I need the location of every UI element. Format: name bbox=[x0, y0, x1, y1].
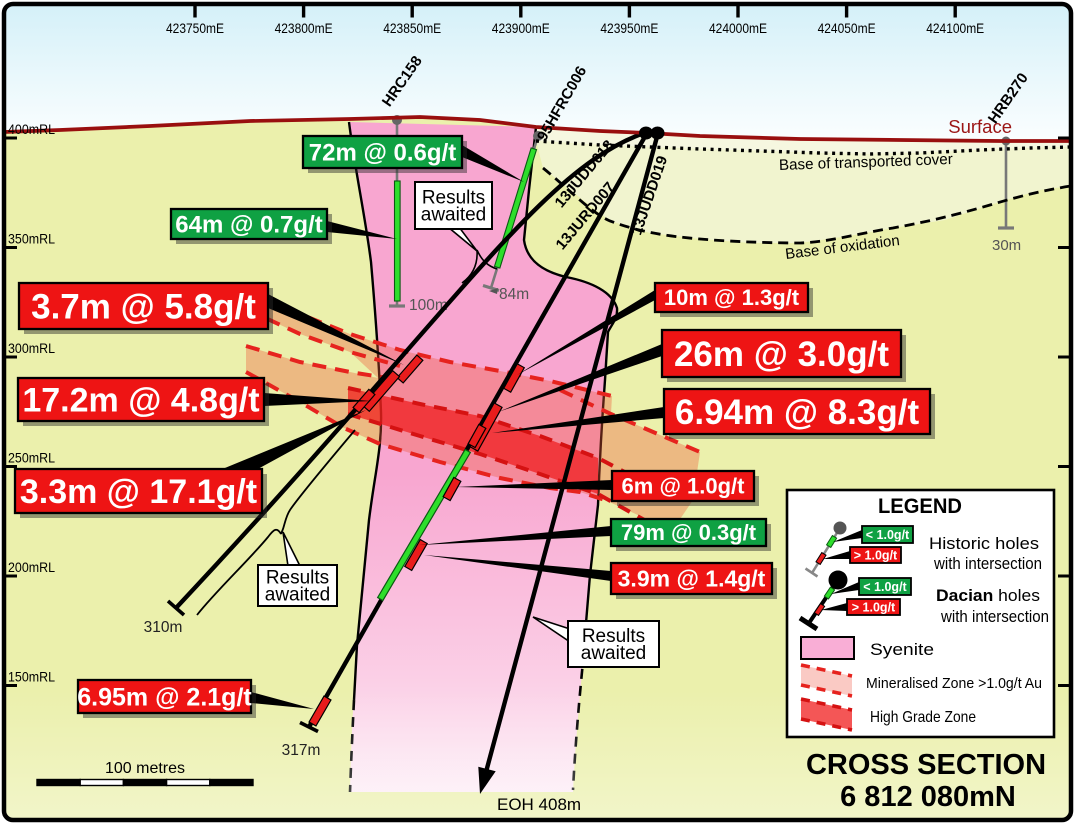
svg-text:3.3m @ 17.1g/t: 3.3m @ 17.1g/t bbox=[20, 473, 257, 511]
svg-text:< 1.0g/t: < 1.0g/t bbox=[866, 528, 910, 542]
svg-text:awaited: awaited bbox=[265, 585, 331, 606]
svg-text:Historic holes: Historic holes bbox=[929, 535, 1039, 553]
svg-text:26m @ 3.0g/t: 26m @ 3.0g/t bbox=[674, 335, 889, 374]
svg-text:3.7m @ 5.8g/t: 3.7m @ 5.8g/t bbox=[31, 287, 256, 326]
svg-text:with intersection: with intersection bbox=[933, 555, 1042, 573]
svg-text:250mRL: 250mRL bbox=[8, 451, 55, 466]
svg-text:84m: 84m bbox=[499, 286, 529, 303]
svg-text:6.95m @ 2.1g/t: 6.95m @ 2.1g/t bbox=[77, 683, 252, 711]
svg-text:424050mE: 424050mE bbox=[818, 21, 876, 36]
svg-text:424000mE: 424000mE bbox=[709, 21, 767, 36]
svg-text:30m: 30m bbox=[992, 237, 1021, 254]
svg-text:300mRL: 300mRL bbox=[8, 341, 55, 356]
svg-text:72m @ 0.6g/t: 72m @ 0.6g/t bbox=[309, 139, 456, 166]
svg-text:423750mE: 423750mE bbox=[166, 21, 224, 36]
svg-text:< 1.0g/t: < 1.0g/t bbox=[863, 580, 907, 594]
svg-text:100 metres: 100 metres bbox=[105, 760, 185, 777]
svg-text:10m @ 1.3g/t: 10m @ 1.3g/t bbox=[664, 285, 800, 310]
svg-text:400mRL: 400mRL bbox=[8, 122, 55, 137]
svg-text:CROSS SECTION: CROSS SECTION bbox=[806, 749, 1046, 781]
svg-text:awaited: awaited bbox=[421, 205, 487, 226]
svg-text:350mRL: 350mRL bbox=[8, 232, 55, 247]
svg-text:3.9m @ 1.4g/t: 3.9m @ 1.4g/t bbox=[618, 566, 766, 592]
svg-text:317m: 317m bbox=[282, 742, 321, 759]
svg-text:Dacian holes: Dacian holes bbox=[936, 587, 1040, 605]
svg-text:17.2m @ 4.8g/t: 17.2m @ 4.8g/t bbox=[22, 381, 259, 419]
svg-text:High Grade Zone: High Grade Zone bbox=[870, 709, 976, 726]
svg-text:423850mE: 423850mE bbox=[383, 21, 441, 36]
svg-text:EOH 408m: EOH 408m bbox=[497, 795, 581, 814]
svg-text:310m: 310m bbox=[144, 619, 183, 636]
svg-text:Syenite: Syenite bbox=[870, 641, 934, 659]
svg-text:423950mE: 423950mE bbox=[600, 21, 658, 36]
svg-text:Mineralised Zone >1.0g/t Au: Mineralised Zone >1.0g/t Au bbox=[866, 675, 1042, 692]
svg-text:64m @ 0.7g/t: 64m @ 0.7g/t bbox=[175, 211, 322, 238]
svg-text:LEGEND: LEGEND bbox=[878, 495, 962, 518]
svg-text:79m @ 0.3g/t: 79m @ 0.3g/t bbox=[621, 520, 757, 545]
svg-text:6 812 080mN: 6 812 080mN bbox=[840, 781, 1016, 813]
svg-text:150mRL: 150mRL bbox=[8, 670, 55, 685]
svg-text:423900mE: 423900mE bbox=[492, 21, 550, 36]
svg-text:with intersection: with intersection bbox=[940, 608, 1049, 626]
svg-text:6m @ 1.0g/t: 6m @ 1.0g/t bbox=[622, 474, 746, 499]
svg-text:6.94m @ 8.3g/t: 6.94m @ 8.3g/t bbox=[675, 393, 920, 432]
svg-text:awaited: awaited bbox=[581, 643, 647, 664]
svg-text:424100mE: 424100mE bbox=[926, 21, 984, 36]
svg-text:423800mE: 423800mE bbox=[275, 21, 333, 36]
svg-text:> 1.0g/t: > 1.0g/t bbox=[854, 548, 898, 562]
svg-text:> 1.0g/t: > 1.0g/t bbox=[852, 600, 896, 614]
svg-text:200mRL: 200mRL bbox=[8, 560, 55, 575]
